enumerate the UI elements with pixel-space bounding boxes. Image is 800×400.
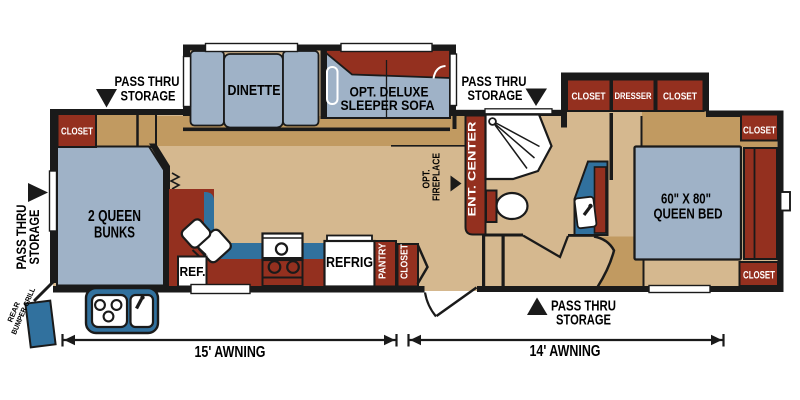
svg-text:STORAGE: STORAGE	[121, 89, 176, 104]
svg-text:14' AWNING: 14' AWNING	[530, 343, 601, 360]
svg-text:ENT. CENTER: ENT. CENTER	[467, 121, 479, 216]
svg-text:DINETTE: DINETTE	[228, 83, 281, 99]
svg-text:PASS THRU: PASS THRU	[462, 74, 527, 89]
svg-text:STORAGE: STORAGE	[27, 210, 42, 265]
svg-text:CLOSET: CLOSET	[743, 125, 776, 137]
svg-text:PANTRY: PANTRY	[377, 243, 389, 279]
svg-text:DRESSER: DRESSER	[615, 91, 652, 102]
svg-text:15' AWNING: 15' AWNING	[195, 344, 266, 361]
svg-text:CLOSET: CLOSET	[743, 270, 775, 282]
svg-text:CLOSET: CLOSET	[61, 126, 93, 138]
svg-text:SLEEPER SOFA: SLEEPER SOFA	[341, 98, 435, 113]
svg-text:QUEEN BED: QUEEN BED	[654, 206, 723, 223]
svg-text:CLOSET: CLOSET	[572, 91, 606, 103]
svg-text:CLOSET: CLOSET	[399, 244, 411, 279]
svg-text:FIREPLACE: FIREPLACE	[432, 153, 443, 201]
svg-text:PASS THRU: PASS THRU	[115, 74, 180, 89]
svg-text:CLOSET: CLOSET	[663, 91, 697, 103]
svg-text:REF.: REF.	[180, 265, 206, 279]
svg-text:STORAGE: STORAGE	[556, 312, 611, 329]
svg-text:BUNKS: BUNKS	[94, 225, 135, 242]
svg-text:2 QUEEN: 2 QUEEN	[88, 208, 141, 225]
svg-text:STORAGE: STORAGE	[468, 88, 523, 103]
svg-text:REFRIG: REFRIG	[326, 255, 373, 271]
